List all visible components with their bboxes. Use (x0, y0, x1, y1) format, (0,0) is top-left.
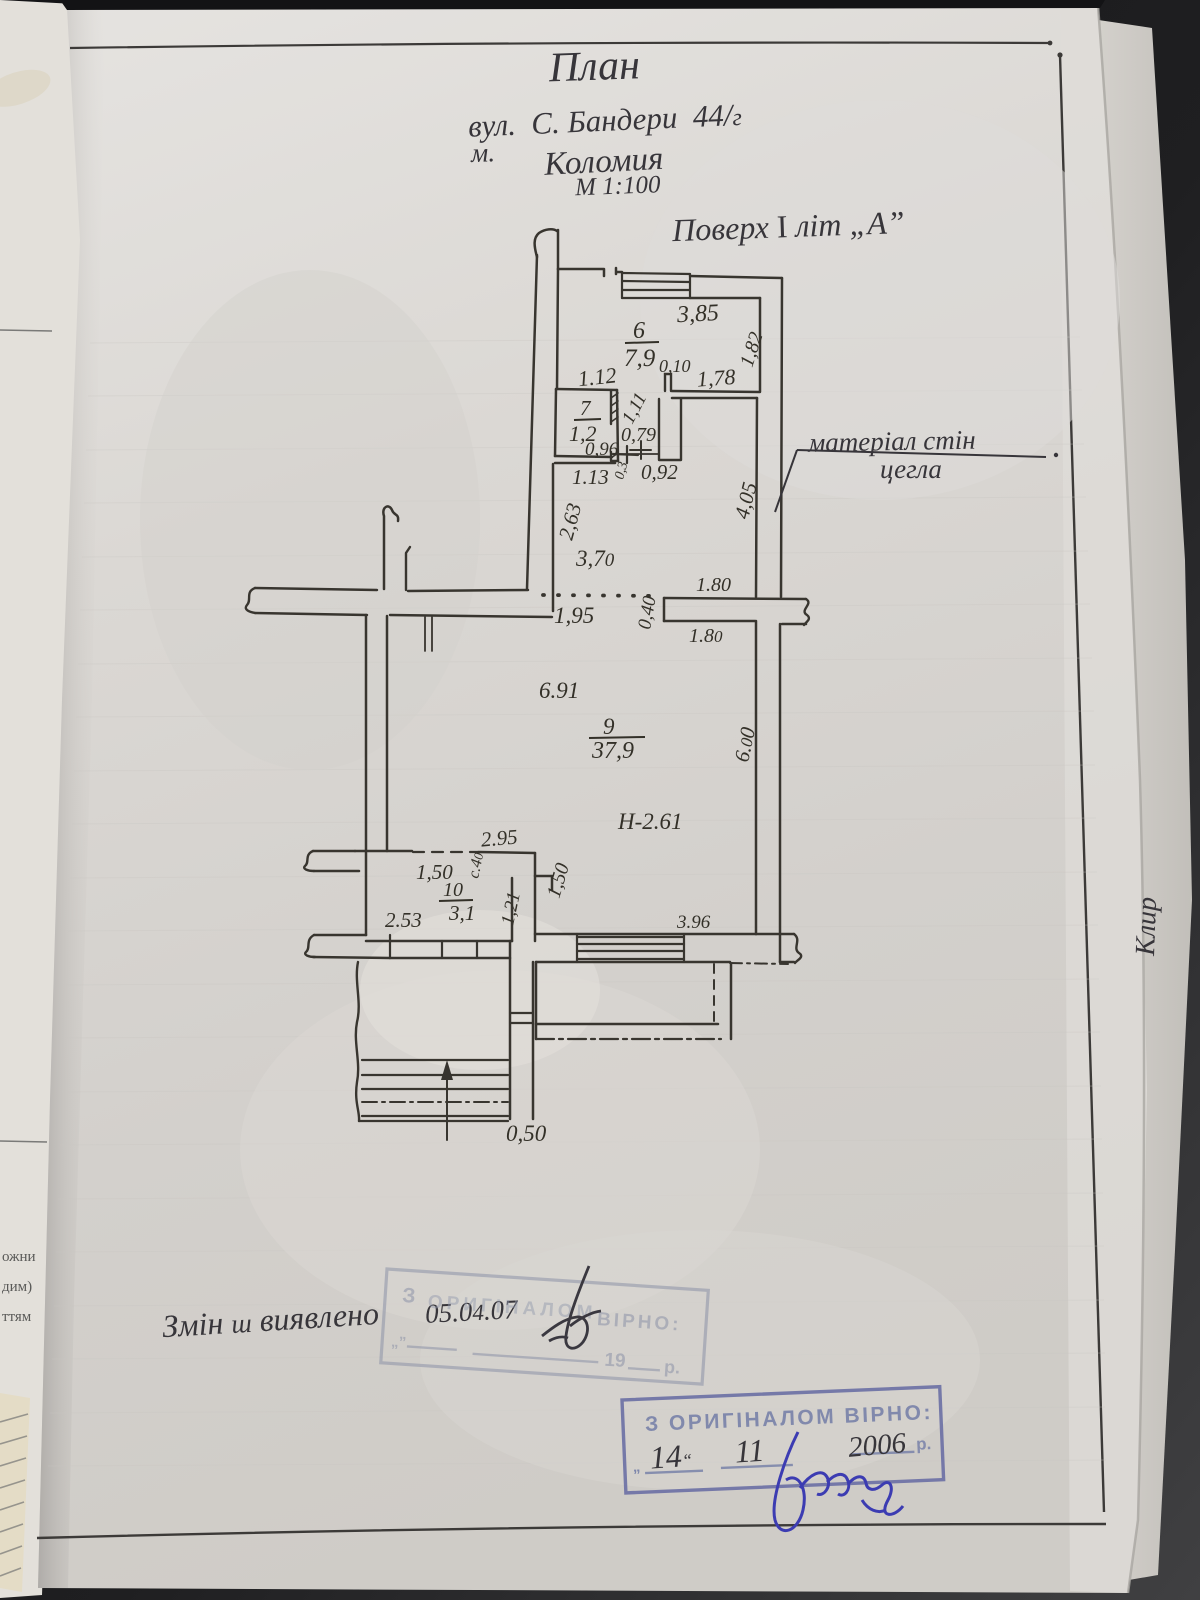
svg-text:цегла: цегла (880, 454, 942, 484)
svg-text:м.: м. (469, 137, 495, 168)
svg-text:„”: „” (391, 1333, 407, 1351)
svg-text:„: „ (632, 1458, 640, 1475)
svg-text:0,50: 0,50 (506, 1121, 547, 1146)
svg-text:2006: 2006 (847, 1427, 908, 1464)
svg-text:9: 9 (603, 714, 615, 739)
svg-text:0,92: 0,92 (641, 460, 678, 484)
svg-text:3,1: 3,1 (448, 901, 475, 925)
svg-text:10: 10 (443, 879, 463, 901)
svg-text:11: 11 (733, 1432, 765, 1470)
svg-text:0,96: 0,96 (585, 439, 619, 460)
svg-text:ттям: ттям (2, 1309, 32, 1325)
svg-text:2.95: 2.95 (480, 825, 519, 852)
svg-text:р.: р. (663, 1357, 680, 1378)
svg-text:1,78: 1,78 (696, 364, 736, 392)
svg-text:План: План (547, 42, 641, 91)
svg-text:19: 19 (604, 1350, 626, 1372)
svg-text:0,10: 0,10 (659, 356, 691, 376)
svg-text:ожни: ожни (2, 1249, 36, 1265)
svg-text:М 1:100: М 1:100 (574, 171, 662, 201)
svg-text:Н-2.61: Н-2.61 (617, 809, 683, 834)
svg-text:0,79: 0,79 (621, 424, 656, 446)
svg-text:1,95: 1,95 (554, 603, 594, 628)
svg-text:1.80: 1.80 (696, 574, 731, 596)
svg-text:6.91: 6.91 (539, 678, 579, 703)
svg-text:37,9: 37,9 (591, 738, 634, 764)
svg-text:6: 6 (633, 318, 645, 344)
svg-text:1.13: 1.13 (572, 465, 609, 489)
svg-text:Клир: Клир (1130, 896, 1163, 957)
svg-text:7,9: 7,9 (624, 345, 656, 372)
svg-text:дим): дим) (2, 1279, 32, 1295)
svg-text:р.: р. (916, 1434, 932, 1454)
svg-text:1.12: 1.12 (577, 362, 618, 391)
svg-text:3,85: 3,85 (675, 300, 719, 328)
svg-text:3.96: 3.96 (676, 912, 711, 933)
svg-text:1.80: 1.80 (689, 625, 723, 647)
svg-text:7: 7 (580, 396, 592, 420)
svg-text:З: З (402, 1284, 417, 1308)
svg-text:3,70: 3,70 (575, 546, 615, 571)
svg-text:2.53: 2.53 (385, 908, 422, 932)
